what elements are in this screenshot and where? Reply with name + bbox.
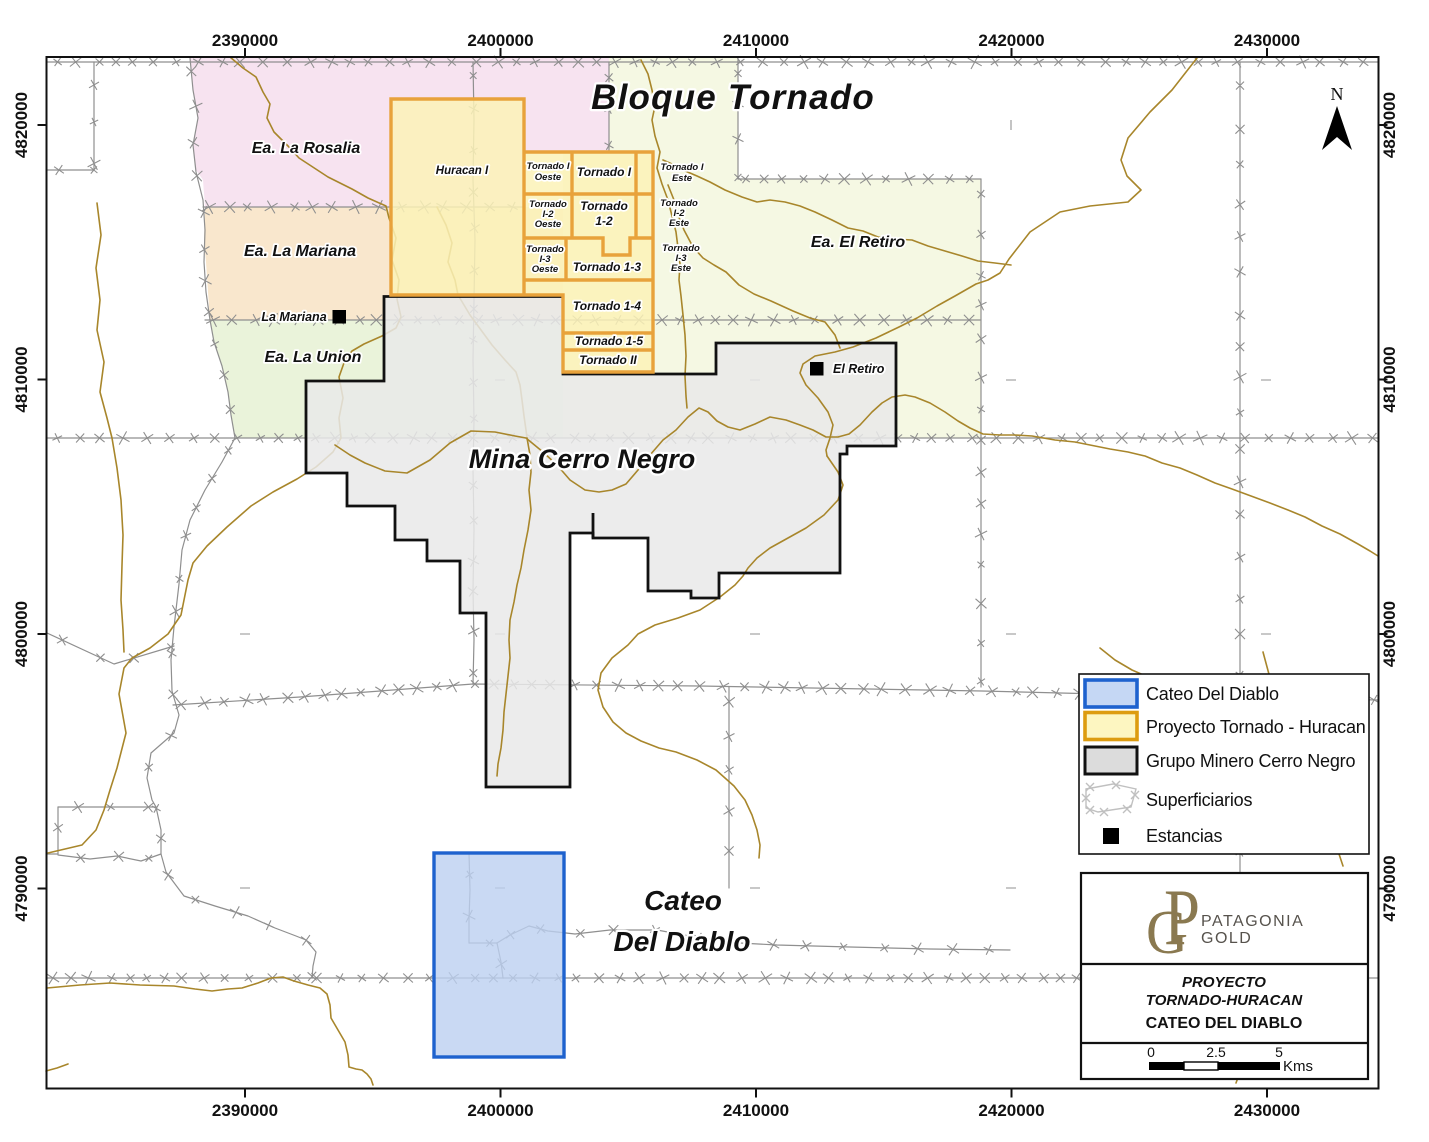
svg-text:Este: Este: [671, 263, 692, 274]
svg-text:4800000: 4800000: [12, 601, 31, 667]
svg-text:Bloque Tornado: Bloque Tornado: [591, 78, 875, 117]
svg-text:2410000: 2410000: [723, 1101, 789, 1120]
svg-text:Grupo Minero Cerro Negro: Grupo Minero Cerro Negro: [1146, 751, 1355, 771]
svg-text:N: N: [1331, 84, 1344, 104]
svg-text:2420000: 2420000: [978, 31, 1044, 50]
svg-text:4790000: 4790000: [12, 855, 31, 921]
svg-text:Tornado 1-3: Tornado 1-3: [573, 260, 642, 274]
svg-text:Oeste: Oeste: [532, 264, 559, 275]
svg-text:4820000: 4820000: [12, 92, 31, 158]
svg-text:2.5: 2.5: [1206, 1044, 1226, 1060]
svg-text:Tornado I: Tornado I: [527, 161, 570, 172]
svg-text:Kms: Kms: [1283, 1058, 1313, 1075]
svg-text:Ea. El Retiro: Ea. El Retiro: [811, 234, 905, 251]
svg-text:Ea. La Mariana: Ea. La Mariana: [244, 243, 356, 260]
svg-text:Oeste: Oeste: [535, 172, 562, 183]
svg-text:0: 0: [1147, 1044, 1155, 1060]
svg-text:G: G: [1146, 899, 1188, 967]
svg-text:Tornado I: Tornado I: [577, 165, 632, 179]
svg-text:Ea. La Union: Ea. La Union: [265, 349, 362, 366]
svg-text:Huracan I: Huracan I: [436, 165, 489, 177]
svg-text:Tornado: Tornado: [580, 199, 628, 213]
svg-text:Oeste: Oeste: [535, 219, 562, 230]
svg-text:La Mariana: La Mariana: [261, 310, 326, 324]
svg-text:Tornado I: Tornado I: [661, 162, 704, 173]
svg-text:2410000: 2410000: [723, 31, 789, 50]
svg-text:Tornado II: Tornado II: [579, 353, 637, 367]
svg-text:2430000: 2430000: [1234, 1101, 1300, 1120]
svg-text:5: 5: [1275, 1044, 1283, 1060]
svg-text:Proyecto Tornado - Huracan: Proyecto Tornado - Huracan: [1146, 717, 1366, 737]
svg-text:2390000: 2390000: [212, 31, 278, 50]
svg-text:Tornado 1-4: Tornado 1-4: [573, 299, 642, 313]
svg-text:2420000: 2420000: [978, 1101, 1044, 1120]
svg-text:2390000: 2390000: [212, 1101, 278, 1120]
svg-text:Estancias: Estancias: [1146, 826, 1222, 846]
svg-text:Tornado 1-5: Tornado 1-5: [575, 334, 644, 348]
svg-text:1-2: 1-2: [595, 214, 613, 228]
svg-text:CATEO DEL DIABLO: CATEO DEL DIABLO: [1146, 1015, 1303, 1032]
svg-text:Cateo: Cateo: [644, 885, 722, 916]
svg-text:2400000: 2400000: [467, 31, 533, 50]
svg-text:2430000: 2430000: [1234, 31, 1300, 50]
svg-text:Del Diablo: Del Diablo: [614, 926, 751, 957]
svg-text:PROYECTO: PROYECTO: [1182, 974, 1266, 991]
svg-text:Este: Este: [669, 218, 690, 229]
svg-text:Cateo Del Diablo: Cateo Del Diablo: [1146, 684, 1279, 704]
svg-text:GOLD: GOLD: [1201, 930, 1252, 947]
svg-text:Ea. La Rosalia: Ea. La Rosalia: [252, 140, 361, 157]
svg-text:El Retiro: El Retiro: [833, 362, 885, 376]
svg-text:4810000: 4810000: [12, 346, 31, 412]
svg-text:Mina Cerro Negro: Mina Cerro Negro: [469, 444, 696, 474]
svg-text:TORNADO-HURACAN: TORNADO-HURACAN: [1146, 992, 1304, 1009]
svg-text:Este: Este: [672, 173, 693, 184]
svg-text:PATAGONIA: PATAGONIA: [1201, 913, 1304, 930]
svg-text:Superficiarios: Superficiarios: [1146, 790, 1252, 810]
svg-text:2400000: 2400000: [467, 1101, 533, 1120]
